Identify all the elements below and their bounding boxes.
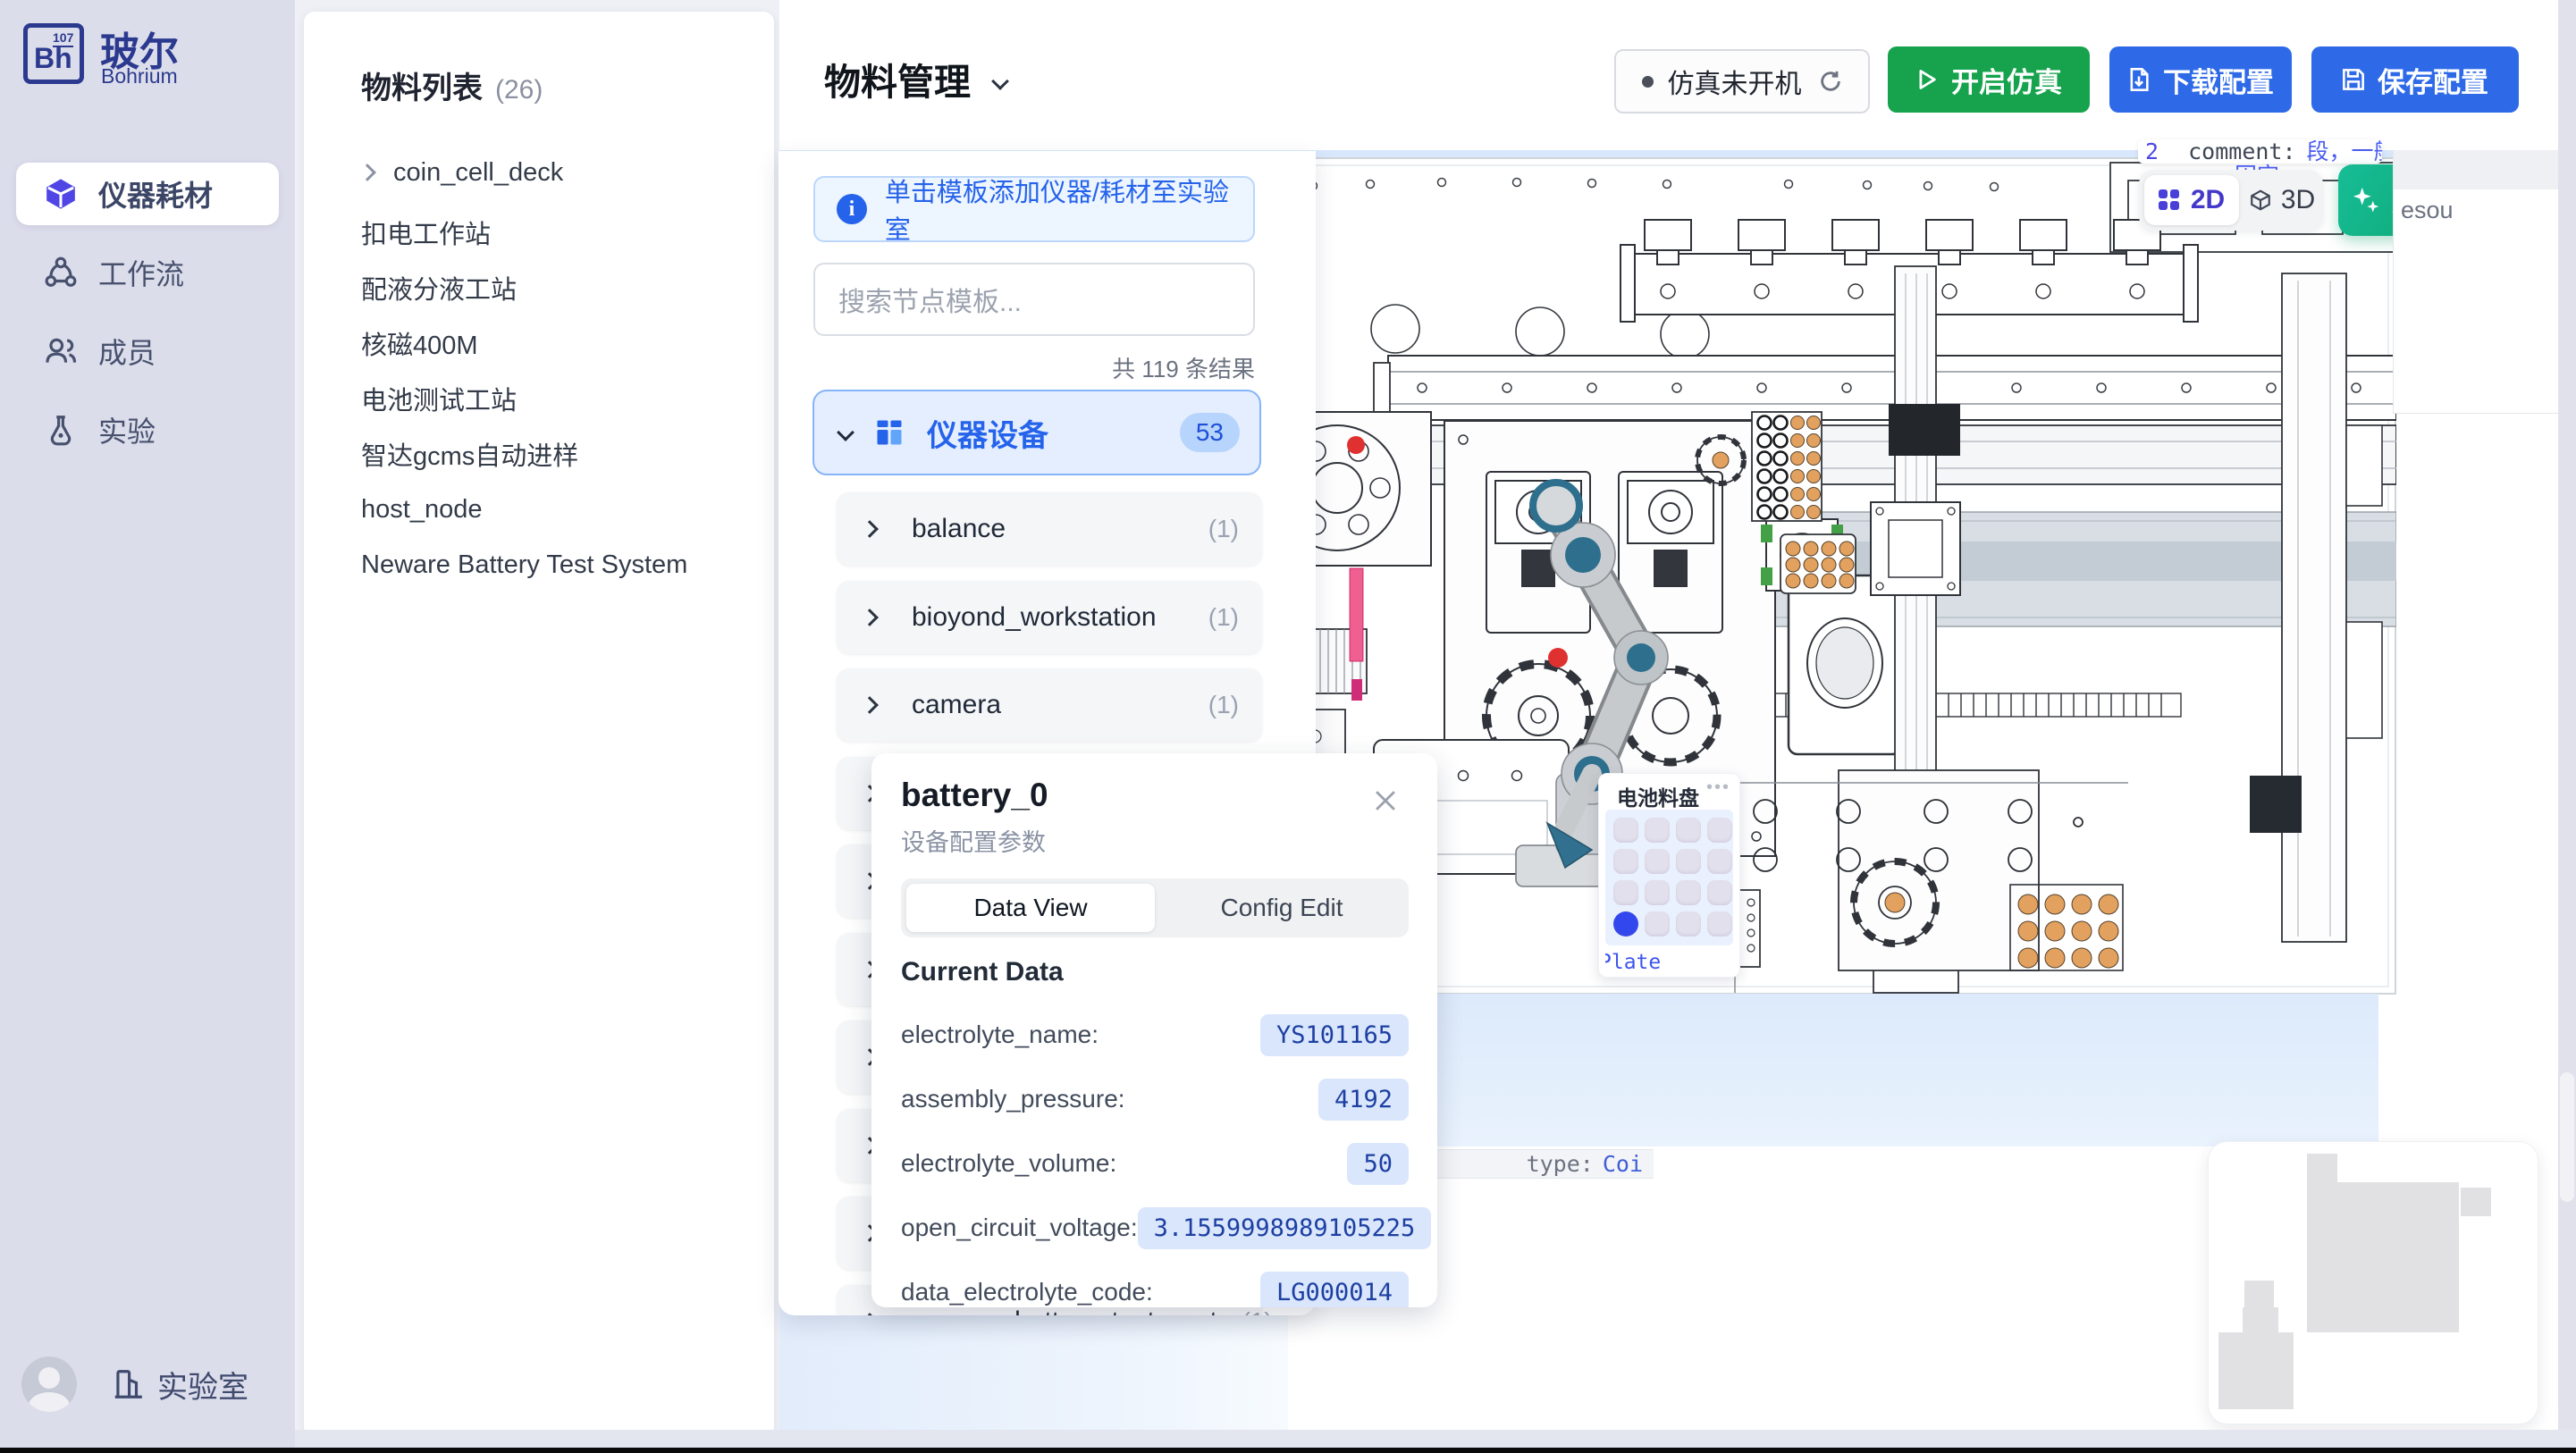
data-row: assembly_pressure:4192 bbox=[901, 1073, 1409, 1125]
bohrium-logo: 107 Bh 玻尔 Bohrium bbox=[23, 23, 282, 86]
tray-slot-selected[interactable] bbox=[1613, 911, 1638, 936]
tree-item[interactable]: 核磁400M bbox=[361, 323, 745, 363]
members-icon bbox=[43, 333, 79, 369]
toggle-3d[interactable]: 3D bbox=[2244, 175, 2319, 225]
comment-tooltip: 2_comment:段，一般为空，stat bbox=[2138, 139, 2382, 164]
minimap[interactable] bbox=[2208, 1141, 2538, 1424]
vertical-scrollbar-thumb[interactable] bbox=[2560, 1072, 2574, 1202]
tree-item[interactable]: 电池测试工站 bbox=[361, 379, 745, 418]
category-badge: 53 bbox=[1180, 413, 1240, 452]
battery-subtitle: 设备配置参数 bbox=[901, 823, 1046, 858]
chevron-down-icon bbox=[837, 424, 854, 441]
info-icon: i bbox=[837, 194, 867, 224]
tree-item-label: Neware Battery Test System bbox=[361, 550, 687, 580]
tray-slot[interactable] bbox=[1707, 818, 1732, 843]
info-banner: i 单击模板添加仪器/耗材至实验室 bbox=[813, 176, 1255, 242]
tray-slot[interactable] bbox=[1645, 849, 1670, 874]
data-row: electrolyte_name:YS101165 bbox=[901, 1009, 1409, 1061]
tray-grid bbox=[1605, 810, 1733, 945]
tab-config-edit[interactable]: Config Edit bbox=[1160, 884, 1403, 932]
value-pill: LG000014 bbox=[1260, 1272, 1409, 1308]
download-label: 下载配置 bbox=[2163, 60, 2274, 100]
panel-header-band bbox=[2394, 150, 2576, 189]
refresh-icon[interactable] bbox=[1818, 69, 1843, 94]
start-label: 开启仿真 bbox=[1951, 60, 2062, 100]
cad-drawing bbox=[1288, 157, 2396, 995]
start-simulation-button[interactable]: 开启仿真 bbox=[1888, 46, 2090, 113]
tree-item-label: 配液分液工站 bbox=[361, 269, 517, 307]
tree-item-label: 扣电工作站 bbox=[361, 214, 491, 251]
tray-slot[interactable] bbox=[1613, 849, 1638, 874]
close-icon[interactable] bbox=[1370, 785, 1402, 818]
layout-grid-icon bbox=[873, 416, 905, 449]
tree-item-label: coin_cell_deck bbox=[393, 158, 563, 188]
status-dot-icon bbox=[1642, 76, 1654, 88]
cube-3d-icon bbox=[2249, 189, 2272, 212]
sidebar-item-workflow[interactable]: 工作流 bbox=[16, 241, 279, 304]
tree-item-coin-cell-deck[interactable]: coin_cell_deck bbox=[361, 153, 745, 192]
tree-item[interactable]: host_node bbox=[361, 490, 745, 529]
tray-slot[interactable] bbox=[1645, 880, 1670, 905]
tray-widget-title: 电池料盘 bbox=[1617, 781, 1699, 811]
tray-slot[interactable] bbox=[1707, 849, 1732, 874]
download-config-button[interactable]: 下载配置 bbox=[2109, 46, 2292, 113]
download-icon bbox=[2127, 67, 2151, 92]
status-text: 仿真未开机 bbox=[1668, 62, 1802, 101]
sparkles-icon bbox=[2351, 185, 2381, 215]
tree-item[interactable]: Neware Battery Test System bbox=[361, 545, 745, 584]
battery-section-title: Current Data bbox=[901, 957, 1064, 987]
horizontal-scrollbar[interactable] bbox=[295, 1430, 2576, 1448]
resources-panel-fragment: esou bbox=[2393, 150, 2576, 414]
comment-value: 段，一般为空，stat bbox=[2307, 139, 2382, 164]
chevron-right-icon[interactable] bbox=[358, 164, 376, 181]
tray-slot[interactable] bbox=[1707, 911, 1732, 936]
page-title-dropdown[interactable]: 物料管理 bbox=[824, 52, 1006, 105]
tray-slot[interactable] bbox=[1676, 849, 1701, 874]
building-icon bbox=[111, 1367, 145, 1401]
tree-item-label: 智达gcms自动进样 bbox=[361, 435, 578, 473]
save-label: 保存配置 bbox=[2378, 60, 2488, 100]
template-item-balance[interactable]: balance(1) bbox=[837, 492, 1262, 566]
result-count: 共 119 条结果 bbox=[813, 351, 1255, 384]
category-instruments[interactable]: 仪器设备 53 bbox=[812, 390, 1261, 475]
tray-slot[interactable] bbox=[1676, 911, 1701, 936]
sidebar-item-instruments[interactable]: 仪器耗材 bbox=[16, 163, 279, 225]
battery-tabs: Data View Config Edit bbox=[901, 878, 1409, 937]
tray-slot[interactable] bbox=[1645, 818, 1670, 843]
flask-icon bbox=[43, 412, 79, 448]
sidebar-footer: 实验室 bbox=[21, 1351, 281, 1417]
battery-title: battery_0 bbox=[901, 777, 1048, 814]
panel-text-fragment: esou bbox=[2401, 197, 2454, 224]
logo-box: 107 Bh bbox=[23, 23, 84, 84]
minimap-block bbox=[2307, 1182, 2459, 1332]
toggle-2d[interactable]: 2D bbox=[2144, 175, 2239, 225]
tree-item-label: host_node bbox=[361, 495, 482, 525]
tab-data-view[interactable]: Data View bbox=[906, 884, 1155, 932]
toggle-2d-label: 2D bbox=[2191, 185, 2225, 215]
tray-slot[interactable] bbox=[1613, 880, 1638, 905]
minimap-block bbox=[2307, 1154, 2337, 1182]
value-pill: 3.1559998989105225 bbox=[1138, 1207, 1432, 1249]
tray-slot[interactable] bbox=[1613, 818, 1638, 843]
cube-icon bbox=[43, 176, 79, 212]
battery-config-panel: battery_0 设备配置参数 Data View Config Edit C… bbox=[871, 753, 1437, 1307]
canvas-blue-band bbox=[1288, 994, 2378, 1146]
info-banner-text: 单击模板添加仪器/耗材至实验室 bbox=[885, 172, 1253, 247]
tree-item[interactable]: 扣电工作站 bbox=[361, 213, 745, 252]
category-label: 仪器设备 bbox=[927, 411, 1180, 455]
materials-panel: 物料列表 (26) coin_cell_deck 扣电工作站 配液分液工站 核磁… bbox=[304, 12, 774, 1437]
sidebar-item-label: 实验 bbox=[98, 409, 156, 450]
screen-bottom-edge bbox=[0, 1448, 2576, 1453]
line-number: 2 bbox=[2145, 139, 2159, 164]
materials-header: 物料列表 (26) bbox=[361, 63, 737, 108]
tray-slot[interactable] bbox=[1676, 880, 1701, 905]
type-label: type: bbox=[1527, 1151, 1594, 1177]
logo-subtitle: Bohrium bbox=[101, 64, 178, 88]
template-item-camera[interactable]: camera(1) bbox=[837, 668, 1262, 742]
type-value: Coi bbox=[1603, 1151, 1643, 1177]
minimap-block bbox=[2218, 1332, 2294, 1409]
tray-widget-menu-icon[interactable]: ••• bbox=[1706, 777, 1730, 798]
data-row: data_electrolyte_code:LG000014 bbox=[901, 1266, 1409, 1307]
minimap-block bbox=[2461, 1188, 2491, 1216]
save-config-button[interactable]: 保存配置 bbox=[2311, 46, 2519, 113]
chevron-down-icon bbox=[991, 72, 1009, 90]
grid-2d-icon bbox=[2159, 189, 2180, 211]
lab-link[interactable]: 实验室 bbox=[111, 1363, 248, 1407]
play-icon bbox=[1915, 68, 1939, 91]
workflow-icon bbox=[43, 255, 79, 290]
minimap-block bbox=[2243, 1307, 2278, 1332]
sidebar-item-label: 工作流 bbox=[98, 252, 184, 293]
materials-title: 物料列表 bbox=[361, 63, 483, 107]
lab-label: 实验室 bbox=[157, 1363, 248, 1407]
template-item-bioyond-workstation[interactable]: bioyond_workstation(1) bbox=[837, 581, 1262, 654]
tree-item-label: 电池测试工站 bbox=[361, 380, 517, 417]
save-icon bbox=[2342, 68, 2365, 91]
tray-plate-label: Plate bbox=[1605, 951, 1733, 974]
view-mode-toggle: 2D 3D bbox=[2139, 170, 2323, 231]
sidebar-item-experiment[interactable]: 实验 bbox=[16, 399, 279, 461]
value-pill: 4192 bbox=[1318, 1079, 1409, 1121]
comment-key: _comment: bbox=[2175, 139, 2295, 164]
toggle-3d-label: 3D bbox=[2281, 185, 2315, 215]
value-pill: YS101165 bbox=[1260, 1014, 1409, 1056]
sidebar-item-label: 仪器耗材 bbox=[98, 173, 213, 214]
data-row: open_circuit_voltage:3.1559998989105225 bbox=[901, 1202, 1409, 1254]
sidebar: 107 Bh 玻尔 Bohrium 仪器耗材 工作流 成员 bbox=[0, 0, 295, 1453]
app-root: 107 Bh 玻尔 Bohrium 仪器耗材 工作流 成员 bbox=[0, 0, 2576, 1453]
data-row: electrolyte_volume:50 bbox=[901, 1138, 1409, 1189]
page-title: 物料管理 bbox=[824, 52, 971, 105]
materials-count: (26) bbox=[495, 75, 543, 105]
search-input[interactable]: 搜索节点模板... bbox=[813, 263, 1255, 336]
tree-item[interactable]: 配液分液工站 bbox=[361, 268, 745, 307]
main-header: 物料管理 仿真未开机 开启仿真 下载配置 保存配置 bbox=[779, 0, 2576, 152]
logo-symbol: Bh bbox=[34, 42, 72, 75]
battery-tray-widget[interactable]: 电池料盘 ••• Plate bbox=[1598, 773, 1740, 978]
value-pill: 50 bbox=[1347, 1143, 1409, 1185]
minimap-block bbox=[2244, 1281, 2274, 1309]
tray-slot[interactable] bbox=[1676, 818, 1701, 843]
tray-slot[interactable] bbox=[1645, 911, 1670, 936]
sidebar-item-members[interactable]: 成员 bbox=[16, 320, 279, 382]
sidebar-item-label: 成员 bbox=[98, 331, 156, 372]
tree-item-label: 核磁400M bbox=[361, 324, 478, 362]
tray-slot[interactable] bbox=[1707, 880, 1732, 905]
simulation-status: 仿真未开机 bbox=[1614, 49, 1870, 113]
tree-item[interactable]: 智达gcms自动进样 bbox=[361, 434, 745, 474]
avatar[interactable] bbox=[21, 1356, 77, 1412]
search-placeholder: 搜索节点模板... bbox=[838, 280, 1022, 319]
vertical-scrollbar[interactable] bbox=[2558, 0, 2576, 1453]
